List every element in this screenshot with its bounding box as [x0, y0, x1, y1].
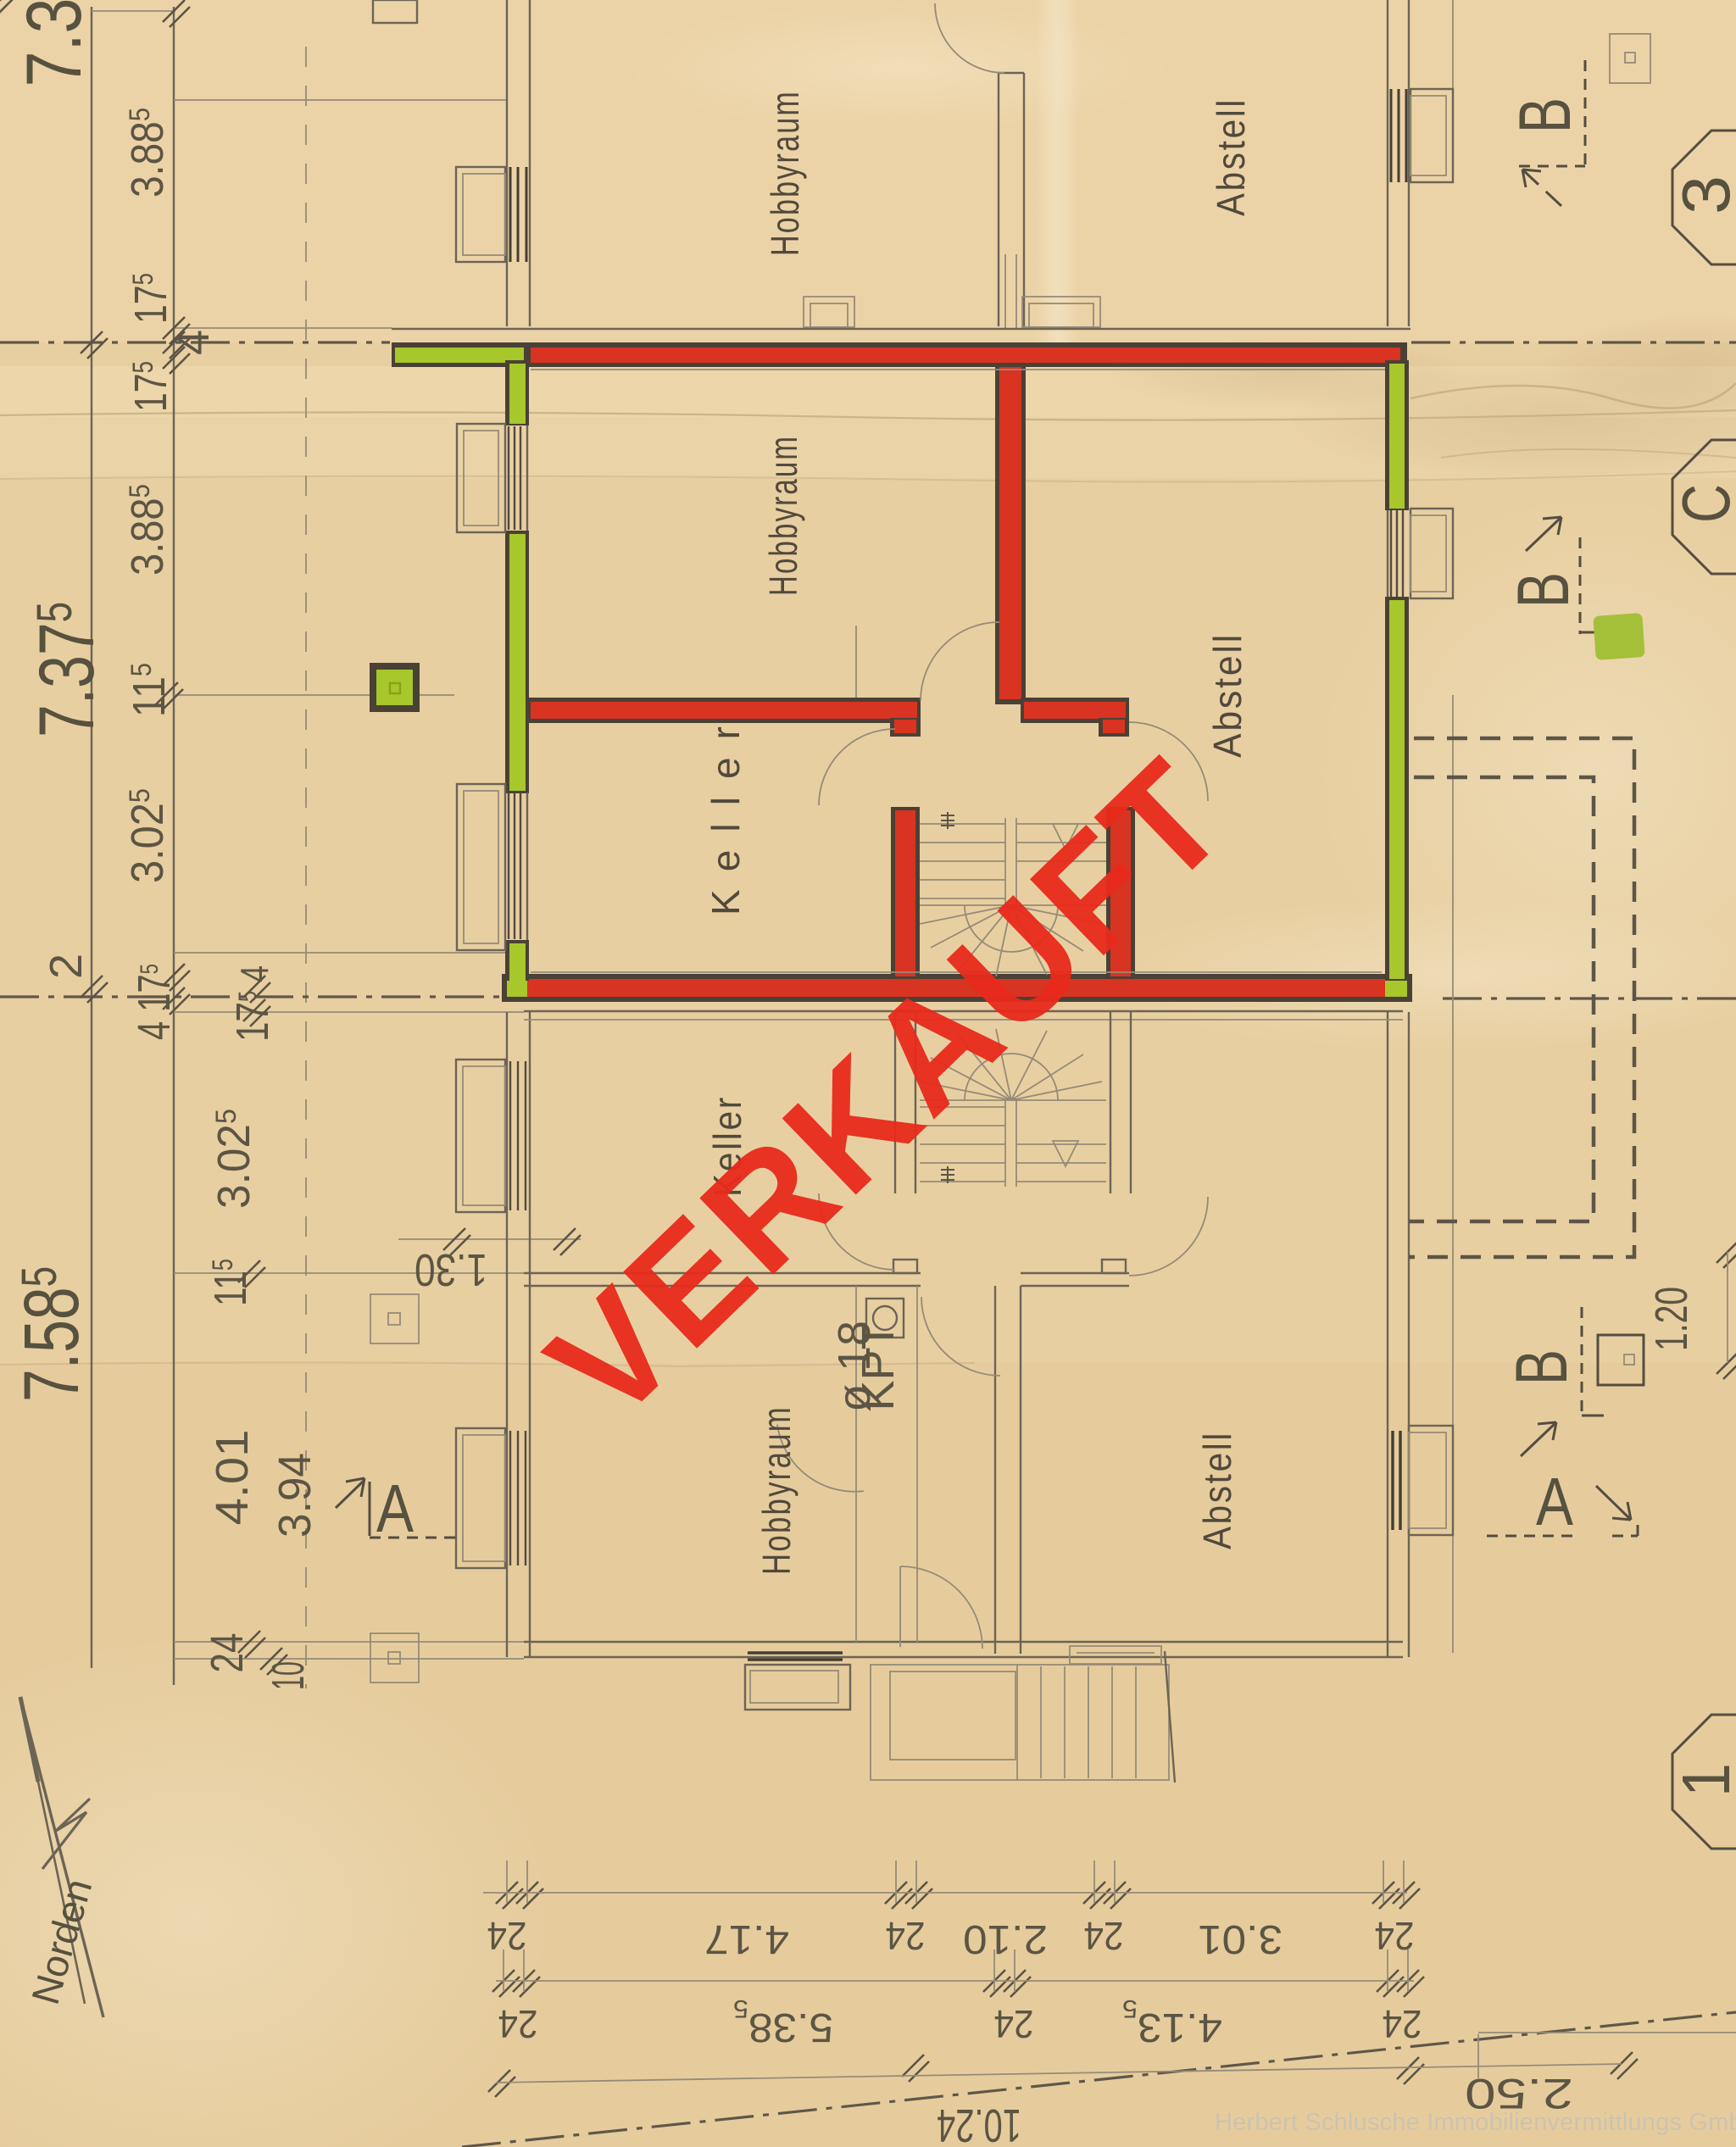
- svg-text:3.94: 3.94: [270, 1453, 320, 1538]
- svg-text:Hobbyraum: Hobbyraum: [754, 1405, 798, 1575]
- svg-text:Abstell: Abstell: [1205, 632, 1249, 758]
- svg-text:A: A: [1536, 1464, 1574, 1539]
- svg-text:2.10: 2.10: [963, 1916, 1048, 1961]
- svg-text:4 175: 4 175: [129, 964, 180, 1040]
- svg-text:1: 1: [1668, 1763, 1736, 1797]
- svg-text:3: 3: [1668, 175, 1736, 214]
- svg-text:175 4: 175 4: [227, 965, 278, 1042]
- svg-text:Herbert Schlusche Immobilienve: Herbert Schlusche Immobilienvermittlungs…: [1215, 2109, 1736, 2136]
- svg-text:24: 24: [1383, 2002, 1422, 2046]
- svg-text:B: B: [1501, 1349, 1583, 1385]
- svg-text:24: 24: [994, 2002, 1034, 2046]
- svg-text:C: C: [1668, 484, 1736, 523]
- svg-text:24: 24: [886, 1914, 926, 1958]
- svg-text:1.30: 1.30: [415, 1244, 487, 1295]
- svg-text:Hobbyraum: Hobbyraum: [761, 435, 805, 596]
- svg-text:10: 10: [263, 1661, 314, 1690]
- svg-text:Hobbyraum: Hobbyraum: [763, 90, 807, 256]
- svg-text:KPT: KPT: [853, 1321, 904, 1410]
- svg-text:24: 24: [498, 2002, 538, 2046]
- svg-text:4.01: 4.01: [207, 1430, 258, 1526]
- svg-text:24: 24: [202, 1633, 253, 1673]
- svg-text:1.20: 1.20: [1646, 1287, 1697, 1351]
- svg-text:4: 4: [168, 330, 219, 355]
- svg-text:2: 2: [41, 954, 92, 979]
- svg-text:B: B: [1503, 572, 1584, 608]
- svg-text:B: B: [1505, 97, 1586, 133]
- svg-text:A: A: [376, 1471, 415, 1546]
- svg-text:24: 24: [1084, 1914, 1124, 1958]
- svg-text:4.17: 4.17: [704, 1916, 789, 1961]
- svg-text:10.24: 10.24: [937, 2100, 1021, 2147]
- svg-text:Abstell: Abstell: [1209, 97, 1253, 216]
- svg-text:24: 24: [487, 1914, 527, 1958]
- svg-text:24: 24: [1375, 1914, 1415, 1958]
- svg-text:7.3: 7.3: [11, 0, 97, 87]
- svg-text:3.01: 3.01: [1198, 1916, 1283, 1961]
- svg-text:Abstell: Abstell: [1195, 1431, 1239, 1549]
